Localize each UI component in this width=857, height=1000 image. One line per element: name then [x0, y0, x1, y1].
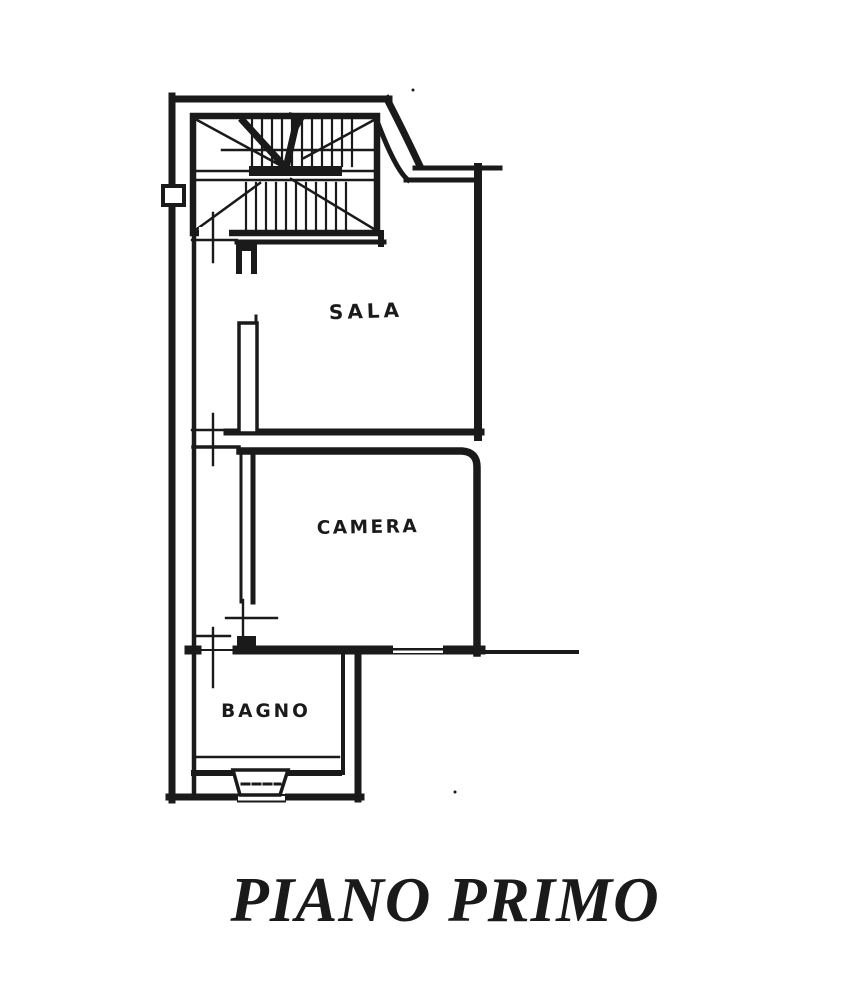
scan-specks: [412, 89, 457, 794]
plan-title: PIANO PRIMO: [229, 865, 659, 935]
sala-partition-leaf: [239, 323, 257, 433]
door-axis-cross-mark-bagno: [197, 628, 230, 687]
room-label-bagno: BAGNO: [221, 701, 311, 722]
window-marker-left-wall: [163, 186, 184, 205]
scan-speck: [454, 791, 457, 794]
room-label-camera: CAMERA: [317, 516, 420, 539]
scan-speck: [412, 89, 415, 92]
pier-recess: [242, 251, 251, 275]
built-elements: [236, 244, 257, 433]
floor-plan-drawing: SALA CAMERA BAGNO PIANO PRIMO: [0, 0, 857, 1000]
window-marker-slit: [393, 646, 443, 649]
window-marker-slit: [393, 651, 443, 654]
door-axis-cross-mark-camera: [226, 600, 277, 639]
door-axis-cross-mark-sala: [192, 414, 230, 465]
stair-landing-bar: [249, 166, 342, 176]
wall-segment-camera-top-right: [240, 451, 477, 653]
floor-plan-page: SALA CAMERA BAGNO PIANO PRIMO: [0, 0, 857, 1000]
staircase: [193, 112, 377, 237]
room-label-sala: SALA: [329, 298, 404, 325]
